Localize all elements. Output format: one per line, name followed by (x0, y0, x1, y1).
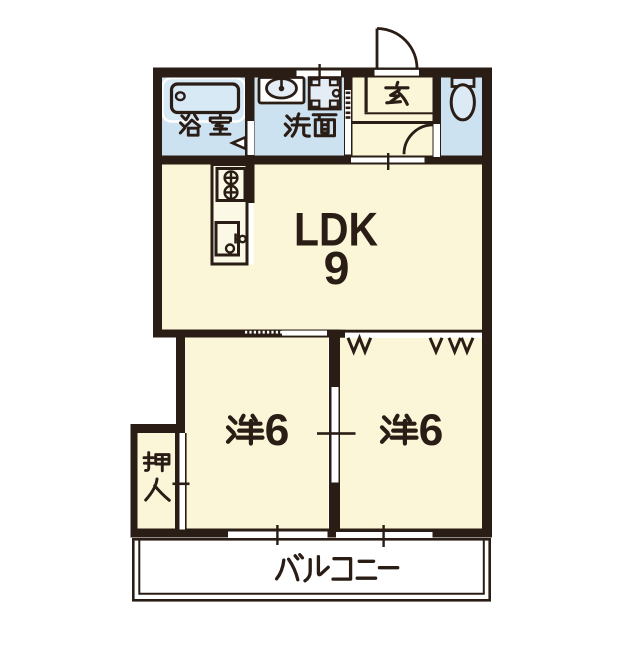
svg-text:6: 6 (265, 406, 290, 455)
svg-text:9: 9 (324, 242, 350, 294)
svg-text:6: 6 (419, 406, 444, 455)
